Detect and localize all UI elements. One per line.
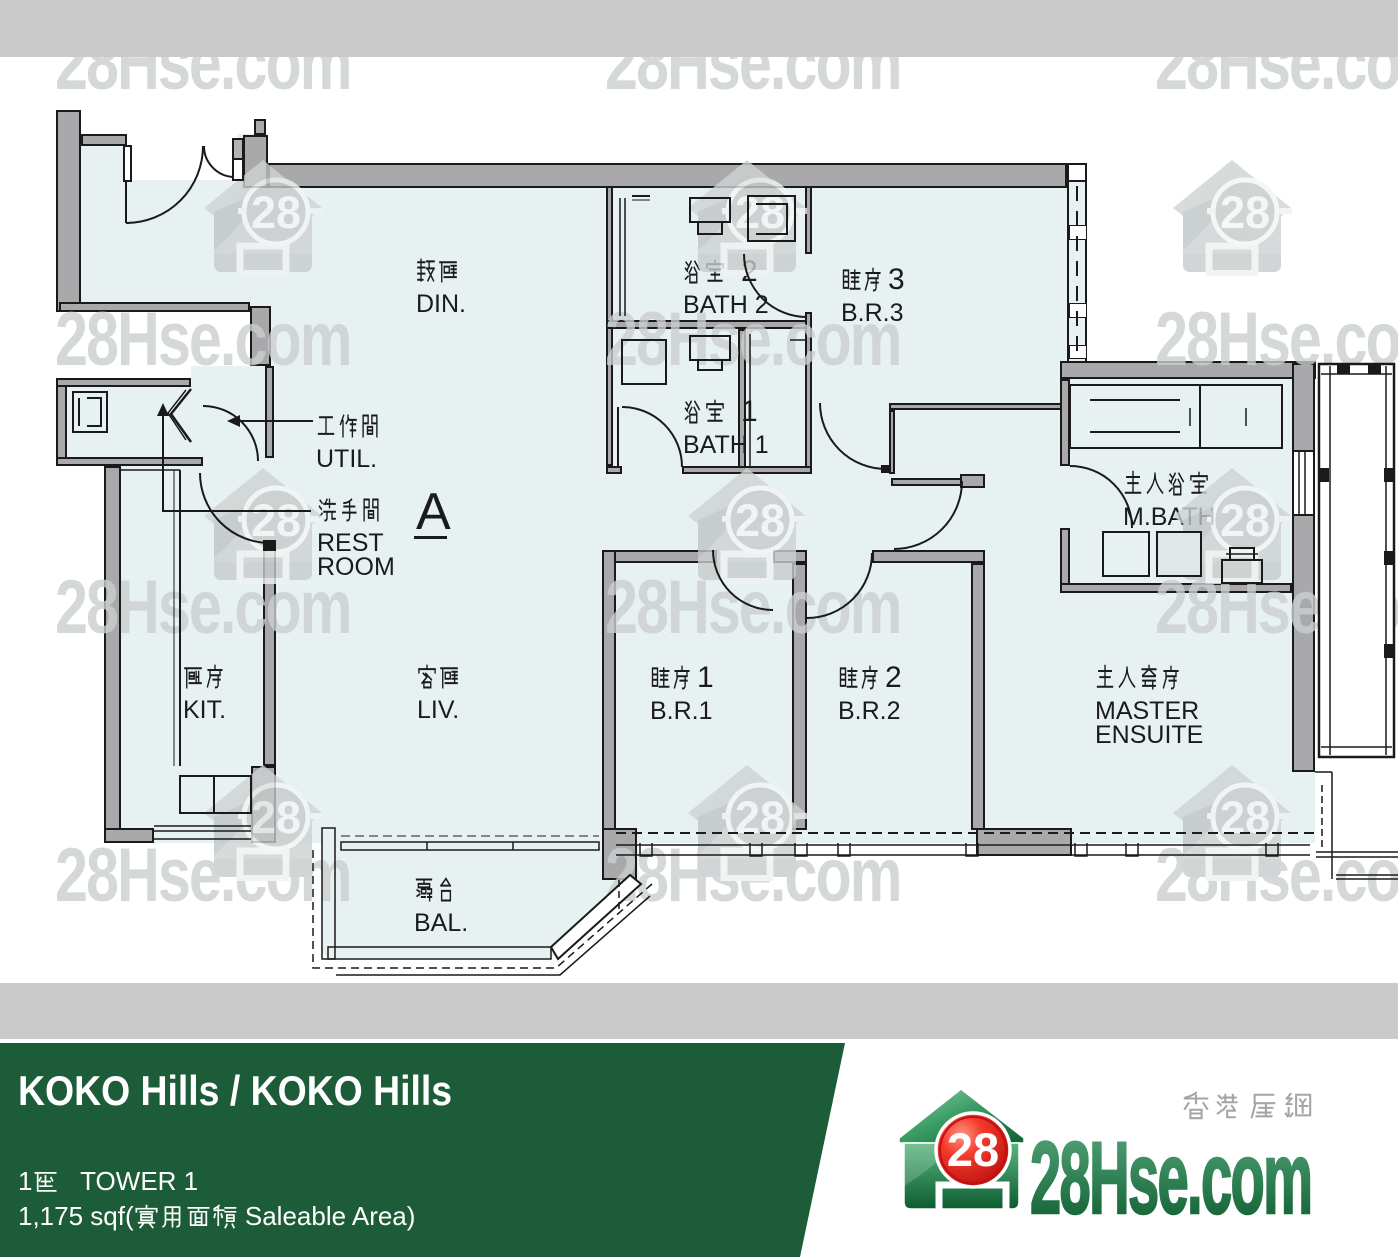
svg-text:28Hse.com: 28Hse.com xyxy=(1030,1124,1311,1224)
